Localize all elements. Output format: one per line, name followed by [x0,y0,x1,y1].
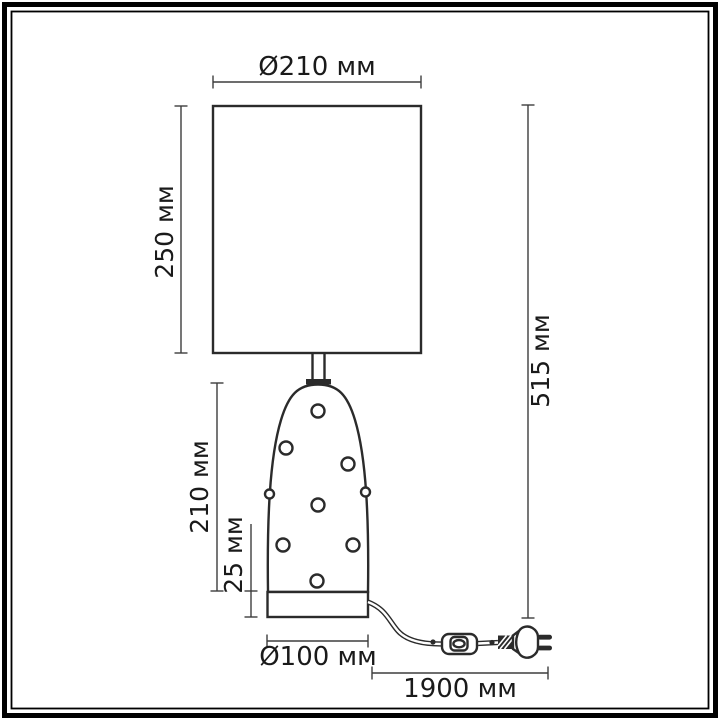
dim-shade-diameter-label: Ø210 мм [258,52,376,82]
dim-shade-height-label: 250 мм [150,185,179,278]
drawing-canvas: Ø210 мм 250 мм 210 мм 25 мм 515 мм Ø100 … [0,0,720,720]
cord-joint [489,640,494,645]
power-plug [498,627,552,658]
inline-switch [442,634,477,654]
dim-cord-length: 1900 мм [372,667,548,705]
decorative-dot [342,458,355,471]
dim-base-diameter-label: Ø100 мм [259,642,377,672]
dim-shade-height: 250 мм [150,106,188,353]
dim-base-diameter: Ø100 мм [259,635,377,673]
plug-pin [538,646,553,651]
switch-button [453,640,464,647]
decorative-dot-edge [361,488,370,497]
dim-shade-diameter: Ø210 мм [213,52,421,89]
lamp-dimension-drawing: Ø210 мм 250 мм 210 мм 25 мм 515 мм Ø100 … [0,0,720,720]
decorative-dot [347,539,360,552]
dim-total-height: 515 мм [522,105,556,618]
cord-joint [430,639,435,644]
dim-body-height-label: 210 мм [185,440,214,533]
dim-body-height: 210 мм [185,383,224,591]
decorative-dot-edge [265,490,274,499]
lampshade [213,106,421,353]
decorative-dot [311,575,324,588]
decorative-dot [280,442,293,455]
plug-pin [538,635,553,640]
plug-body [516,627,538,658]
dim-base-height-label: 25 мм [219,516,248,593]
decorative-dot [277,539,290,552]
power-cord [368,602,498,645]
lamp-base [268,592,369,617]
decorative-dot [312,499,325,512]
dim-cord-length-label: 1900 мм [403,674,517,704]
dim-total-height-label: 515 мм [526,314,555,407]
dim-base-height: 25 мм [219,516,258,617]
decorative-dot [312,405,325,418]
lamp-stem [306,353,331,385]
